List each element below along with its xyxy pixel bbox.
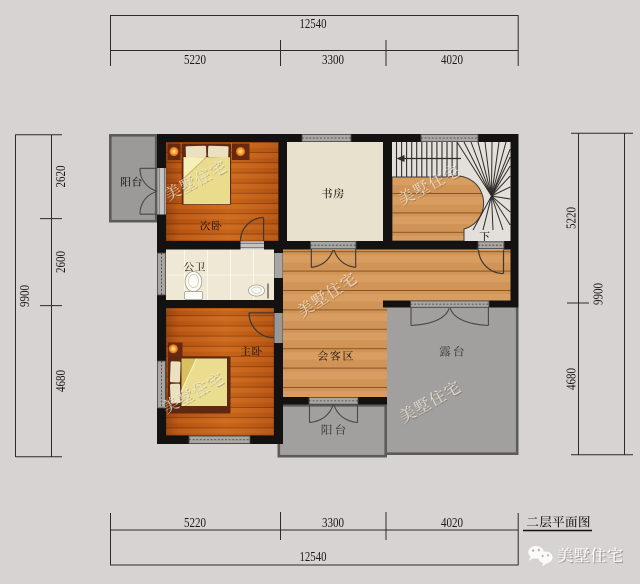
svg-text:5220: 5220 (184, 515, 206, 530)
svg-text:9900: 9900 (17, 285, 32, 307)
svg-text:4680: 4680 (564, 368, 579, 390)
svg-text:5220: 5220 (184, 52, 206, 67)
svg-text:3300: 3300 (322, 52, 344, 67)
svg-text:12540: 12540 (300, 549, 327, 564)
svg-text:9900: 9900 (591, 283, 606, 305)
svg-text:2620: 2620 (53, 165, 68, 187)
svg-text:12540: 12540 (300, 16, 327, 31)
svg-text:3300: 3300 (322, 515, 344, 530)
svg-text:4020: 4020 (441, 515, 463, 530)
svg-text:4020: 4020 (441, 52, 463, 67)
svg-text:5220: 5220 (564, 207, 579, 229)
svg-text:4680: 4680 (53, 370, 68, 392)
svg-text:2600: 2600 (53, 251, 68, 273)
